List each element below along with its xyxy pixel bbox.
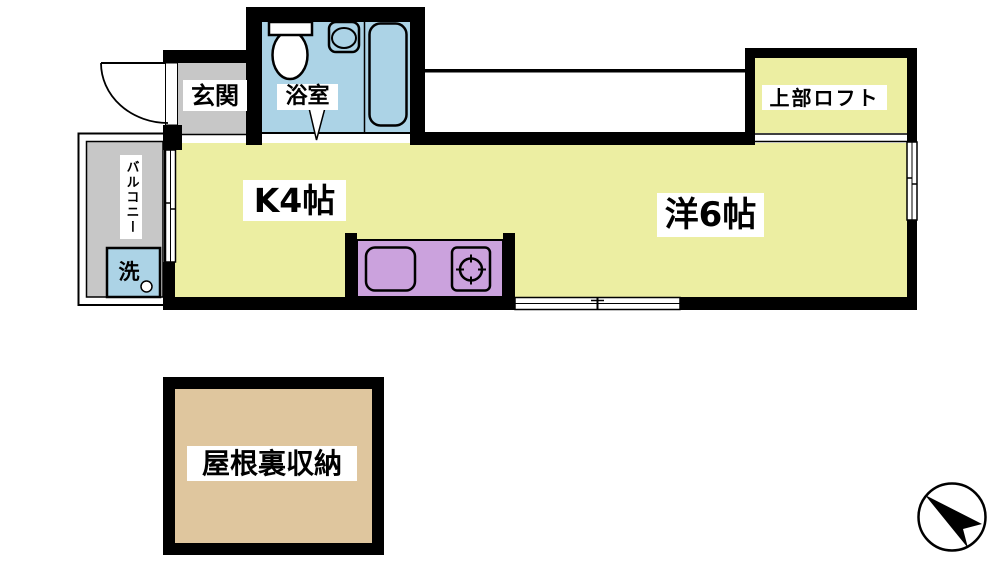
bottom-wall-window: [515, 298, 680, 310]
compass-icon: [919, 484, 986, 551]
loft-label: 上部ロフト: [762, 85, 887, 110]
entrance-door-arc: [101, 63, 168, 123]
balcony-label: バルコニー: [120, 155, 142, 239]
right-wall-window: [907, 142, 917, 220]
loft-open-edge: [755, 133, 907, 143]
bathroom-label: 浴室: [277, 84, 338, 110]
kitchen-counter: [357, 240, 503, 297]
kitchen-label: K4帖: [243, 180, 346, 221]
entrance-label: 玄関: [183, 80, 247, 111]
washing-machine-label: 洗: [111, 259, 147, 285]
attic-storage-label: 屋根裏収納: [187, 446, 357, 481]
balcony-window: [166, 150, 176, 262]
floorplan-canvas: 玄関 浴室 K4帖 洋6帖 上部ロフト バルコニー 洗 屋根裏収納: [0, 0, 1000, 562]
entrance-door-opening: [166, 63, 178, 125]
western-room-label: 洋6帖: [657, 193, 764, 237]
